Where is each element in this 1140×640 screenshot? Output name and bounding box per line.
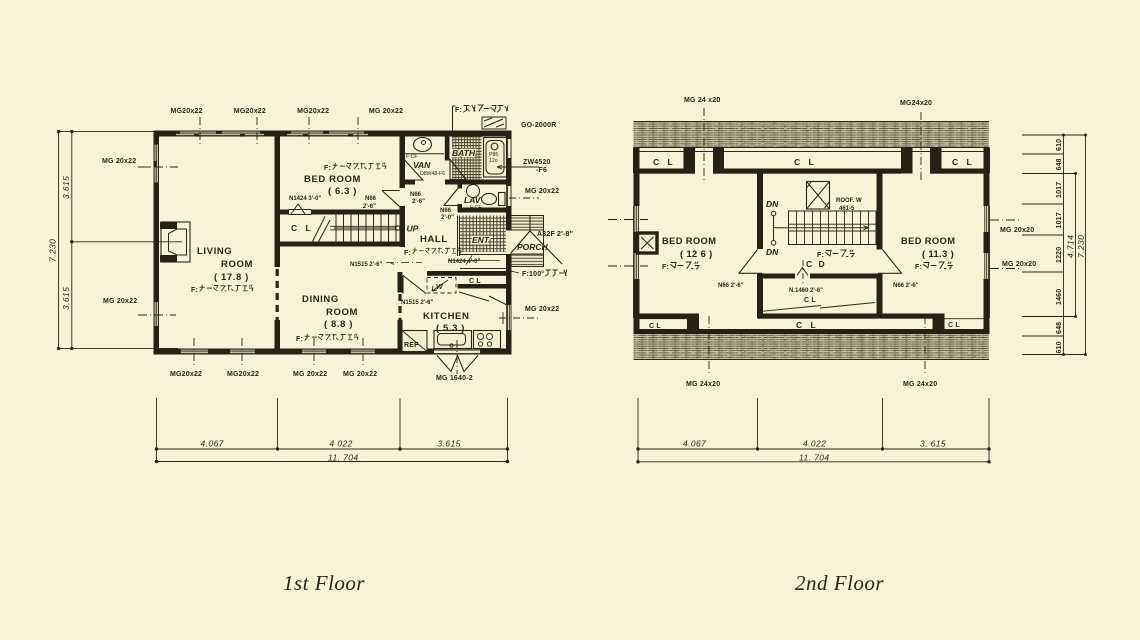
- svg-text:461-5: 461-5: [839, 206, 855, 212]
- svg-text:A32F 2'-8": A32F 2'-8": [537, 231, 573, 238]
- svg-text:MG20x22: MG20x22: [170, 371, 202, 378]
- svg-text:1017: 1017: [1056, 212, 1063, 228]
- svg-text:MG20x22: MG20x22: [297, 108, 329, 115]
- svg-text:C L: C L: [469, 278, 481, 285]
- svg-text:BATH: BATH: [452, 148, 476, 158]
- svg-text:648: 648: [1056, 158, 1063, 170]
- svg-text:4.022: 4.022: [803, 439, 826, 449]
- svg-text:11. 704: 11. 704: [799, 453, 830, 463]
- svg-text:D8W48-F6: D8W48-F6: [420, 171, 445, 177]
- svg-text:F:: F:: [817, 252, 824, 259]
- svg-text:( 5.3 ): ( 5.3 ): [436, 323, 465, 334]
- svg-text:1220: 1220: [1056, 247, 1063, 263]
- svg-text:12o: 12o: [489, 158, 498, 164]
- svg-text:C L: C L: [291, 223, 314, 233]
- svg-text:MG24x20: MG24x20: [900, 100, 932, 107]
- svg-text:MG 20x22: MG 20x22: [102, 158, 136, 165]
- svg-text:2'-6": 2'-6": [412, 199, 425, 205]
- svg-text:LIVING: LIVING: [197, 246, 232, 257]
- svg-text:DINING: DINING: [302, 294, 339, 305]
- svg-text:C L: C L: [804, 297, 816, 304]
- svg-text:N66: N66: [410, 192, 422, 198]
- svg-text:( 11.3 ): ( 11.3 ): [922, 249, 954, 259]
- svg-text:MG 20x22: MG 20x22: [525, 306, 559, 313]
- svg-text:W: W: [436, 284, 444, 291]
- svg-text:4.714: 4.714: [1066, 235, 1076, 258]
- svg-text:MG20x22: MG20x22: [227, 371, 259, 378]
- svg-text:F:CF: F:CF: [470, 205, 482, 211]
- svg-text:3. 615: 3. 615: [920, 439, 946, 449]
- svg-text:ENT: ENT: [472, 235, 490, 245]
- svg-text:2'-0": 2'-0": [441, 215, 454, 221]
- svg-text:MG20x22: MG20x22: [234, 108, 266, 115]
- svg-text:F:: F:: [455, 107, 462, 114]
- svg-text:C L: C L: [948, 322, 960, 329]
- svg-text:( 12 6 ): ( 12 6 ): [680, 249, 713, 259]
- svg-text:UP: UP: [407, 224, 419, 234]
- svg-text:F:100°: F:100°: [522, 270, 544, 278]
- svg-text:4.067: 4.067: [201, 439, 224, 449]
- svg-text:MG 1640-2: MG 1640-2: [436, 375, 473, 382]
- svg-text:F:: F:: [662, 264, 669, 271]
- svg-text:ROOF. W: ROOF. W: [836, 198, 862, 204]
- svg-text:MG 20x22: MG 20x22: [343, 371, 377, 378]
- svg-text:N1515 2'-6": N1515 2'-6": [401, 300, 433, 306]
- svg-text:PORCH: PORCH: [517, 242, 549, 252]
- svg-text:F:: F:: [296, 336, 303, 343]
- svg-text:C L: C L: [796, 320, 819, 330]
- svg-text:-F6: -F6: [536, 167, 547, 174]
- svg-text:610: 610: [1056, 341, 1063, 353]
- svg-text:C D: C D: [806, 259, 827, 269]
- svg-text:HALL: HALL: [420, 234, 448, 245]
- svg-text:KITCHEN: KITCHEN: [423, 311, 469, 322]
- svg-text:MG 20x20: MG 20x20: [1000, 227, 1034, 234]
- svg-text:1st Floor: 1st Floor: [283, 571, 365, 595]
- svg-text:MG 20x22: MG 20x22: [103, 298, 137, 305]
- svg-text:N66 2'-6": N66 2'-6": [718, 283, 744, 289]
- svg-text:( 8.8 ): ( 8.8 ): [324, 319, 353, 330]
- svg-text:7.230: 7.230: [48, 239, 58, 262]
- svg-text:648: 648: [1056, 322, 1063, 334]
- svg-text:N1424 3'-0": N1424 3'-0": [289, 196, 321, 202]
- svg-text:ROOM: ROOM: [221, 259, 253, 270]
- svg-text:BED ROOM: BED ROOM: [662, 236, 716, 246]
- svg-text:MG 20x22: MG 20x22: [369, 108, 403, 115]
- svg-text:N1515 2'-6": N1515 2'-6": [350, 262, 382, 268]
- svg-text:C L: C L: [952, 157, 975, 167]
- svg-text:MG 24 x20: MG 24 x20: [684, 97, 720, 104]
- svg-text:MG20x22: MG20x22: [171, 108, 203, 115]
- svg-text:11. 704: 11. 704: [328, 453, 359, 463]
- svg-text:MG 20x22: MG 20x22: [293, 371, 327, 378]
- svg-text:LAV: LAV: [464, 195, 482, 205]
- svg-text:DN: DN: [766, 247, 779, 257]
- svg-text:MG 20x20: MG 20x20: [1002, 261, 1036, 268]
- svg-text:BED ROOM: BED ROOM: [304, 174, 361, 185]
- svg-text:ROOM: ROOM: [326, 307, 358, 318]
- svg-text:4 022: 4 022: [330, 439, 353, 449]
- svg-text:F:CF: F:CF: [406, 154, 418, 160]
- svg-text:C L: C L: [649, 323, 661, 330]
- svg-text:7.230: 7.230: [1076, 235, 1086, 258]
- svg-text:3.615: 3.615: [61, 287, 71, 310]
- svg-text:F:: F:: [191, 287, 198, 294]
- svg-text:DN: DN: [766, 199, 779, 209]
- svg-text:1460: 1460: [1056, 289, 1063, 305]
- svg-text:ZW4520: ZW4520: [523, 159, 551, 166]
- svg-text:N.1460 2'-6": N.1460 2'-6": [789, 288, 823, 294]
- svg-text:( 17.8 ): ( 17.8 ): [214, 272, 249, 283]
- svg-text:MG 24x20: MG 24x20: [903, 381, 937, 388]
- svg-text:N66 2'-6": N66 2'-6": [893, 283, 919, 289]
- svg-text:MG 20x22: MG 20x22: [525, 188, 559, 195]
- svg-text:F:: F:: [324, 165, 331, 172]
- svg-text:3.615: 3.615: [61, 176, 71, 199]
- svg-text:BED ROOM: BED ROOM: [901, 236, 955, 246]
- svg-text:4.067: 4.067: [683, 439, 706, 449]
- svg-text:REF: REF: [404, 342, 419, 349]
- svg-text:C L: C L: [794, 157, 817, 167]
- svg-text:GO-2000R: GO-2000R: [521, 122, 556, 129]
- svg-text:3.615: 3.615: [438, 439, 461, 449]
- svg-text:F:: F:: [404, 250, 411, 257]
- svg-text:2nd Floor: 2nd Floor: [795, 571, 884, 595]
- svg-text:1017: 1017: [1056, 182, 1063, 198]
- svg-text:N1424 4'-0": N1424 4'-0": [448, 259, 480, 265]
- svg-text:2'-6": 2'-6": [363, 204, 376, 210]
- svg-text:610: 610: [1056, 139, 1063, 151]
- svg-text:C L: C L: [653, 157, 676, 167]
- svg-text:N66: N66: [365, 196, 377, 202]
- svg-text:( 6.3 ): ( 6.3 ): [328, 186, 357, 197]
- svg-text:MG 24x20: MG 24x20: [686, 381, 720, 388]
- svg-text:F:: F:: [915, 264, 922, 271]
- svg-text:N66: N66: [440, 208, 452, 214]
- svg-text:VAN: VAN: [413, 160, 431, 170]
